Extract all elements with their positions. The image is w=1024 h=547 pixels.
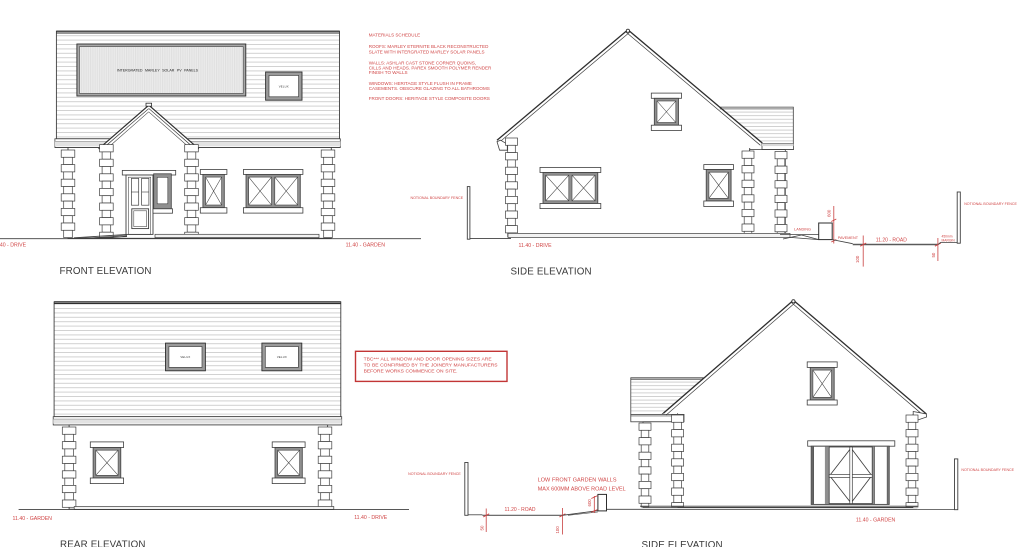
svg-text:FRONT ELEVATION: FRONT ELEVATION [60,266,152,277]
svg-text:11.40 - GARDEN: 11.40 - GARDEN [13,516,53,522]
svg-text:MARGIN: MARGIN [942,239,956,243]
svg-text:NOTIONAL BOUNDARY FENCE: NOTIONAL BOUNDARY FENCE [408,472,461,476]
svg-text:50: 50 [479,525,484,530]
svg-text:MATERIALS SCHEDULE: MATERIALS SCHEDULE [369,33,420,38]
svg-text:100: 100 [855,255,860,263]
svg-text:SIDE ELEVATION: SIDE ELEVATION [511,266,592,277]
svg-text:11.40 - DRIVE: 11.40 - DRIVE [354,515,388,521]
svg-text:100: 100 [555,526,560,534]
svg-text:INTERGRATED MARLEY SOLAR PV PA: INTERGRATED MARLEY SOLAR PV PANELS [117,69,199,73]
svg-text:NOTIONAL BOUNDARY FENCE: NOTIONAL BOUNDARY FENCE [964,202,1017,206]
svg-text:NOTIONAL BOUNDARY FENCE: NOTIONAL BOUNDARY FENCE [961,468,1014,472]
svg-text:BEFORE WORKS COMMENCE ON SITE.: BEFORE WORKS COMMENCE ON SITE. [364,368,458,374]
svg-text:TO BE CONFIRMED BY THE JOINERY: TO BE CONFIRMED BY THE JOINERY MANUFACTU… [364,362,499,368]
svg-text:REAR ELEVATION: REAR ELEVATION [60,540,146,547]
svg-text:11.20 - ROAD: 11.20 - ROAD [505,507,536,513]
svg-text:LANDING: LANDING [794,227,811,231]
svg-text:LOW FRONT GARDEN WALLS: LOW FRONT GARDEN WALLS [538,478,617,484]
svg-text:CASEMENTS. OBSCURE GLAZING TO: CASEMENTS. OBSCURE GLAZING TO ALL BATHRO… [369,86,490,91]
svg-text:FRONT DOORS: HERITAGE STYLE CO: FRONT DOORS: HERITAGE STYLE COMPOSITE DO… [369,96,490,101]
svg-text:11.40 - GARDEN: 11.40 - GARDEN [856,518,896,524]
svg-text:VELUX: VELUX [180,355,190,359]
svg-text:600: 600 [827,209,832,217]
svg-text:FINISH TO WALLS: FINISH TO WALLS [369,70,408,75]
svg-text:SLATE WITH INTERGRATED MARLEY: SLATE WITH INTERGRATED MARLEY SOLAR PANE… [369,49,485,54]
svg-text:11.40 - GARDEN: 11.40 - GARDEN [346,242,386,248]
svg-text:PAVEMENT: PAVEMENT [838,236,859,240]
svg-text:ROOFS: MARLEY ETERNITE BLACK R: ROOFS: MARLEY ETERNITE BLACK RECONSTRUCT… [369,44,489,49]
svg-text:50: 50 [931,252,936,257]
svg-text:11.40 - DRIVE: 11.40 - DRIVE [519,243,553,249]
svg-text:NOTIONAL BOUNDARY FENCE: NOTIONAL BOUNDARY FENCE [411,196,464,200]
svg-text:TBC*** ALL WINDOW AND DOOR OPE: TBC*** ALL WINDOW AND DOOR OPENING SIZES… [364,356,493,362]
svg-text:VELUX: VELUX [279,84,289,88]
svg-text:MAX 600MM ABOVE ROAD LEVEL: MAX 600MM ABOVE ROAD LEVEL [538,486,626,492]
svg-text:600: 600 [587,499,592,507]
svg-text:VELUX: VELUX [277,355,287,359]
svg-text:11.20 - ROAD: 11.20 - ROAD [876,238,907,244]
svg-text:SIDE ELEVATION: SIDE ELEVATION [642,540,723,547]
svg-text:11.40 - DRIVE: 11.40 - DRIVE [0,242,27,248]
